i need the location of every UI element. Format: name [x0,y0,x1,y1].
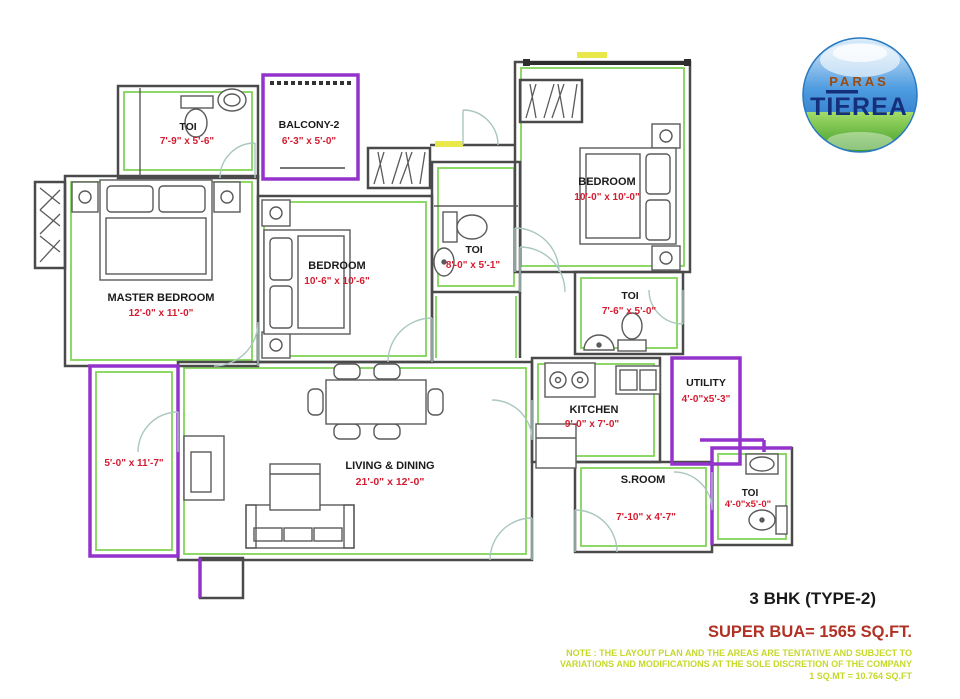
footer-text: 3 BHK (TYPE-2) SUPER BUA= 1565 SQ.FT. NO… [560,589,912,681]
paras-tierea-logo: PARAS TIEREA [803,38,917,152]
dims-toi-center: 8'-0" x 5'-1" [446,260,501,271]
dims-balcony2: 6'-3" x 5'-0" [282,136,337,147]
label-kitchen: KITCHEN [570,404,619,416]
dims-s-room: 7'-10" x 4'-7" [616,512,676,523]
sofa-icon [246,505,354,548]
note-line-2: VARIATIONS AND MODIFICATIONS AT THE SOLE… [560,659,912,669]
wall-wardrobe-left [35,182,65,268]
unit-type-label: 3 BHK (TYPE-2) [749,589,876,608]
dark-top-wall [523,59,691,66]
dims-bedroom-top: 10'-0" x 10'-0" [574,192,640,203]
label-toi-bottom: TOI [742,488,759,499]
label-living-dining: LIVING & DINING [345,460,434,472]
note-line-3: 1 SQ.MT = 10.764 SQ.FT [809,671,912,681]
tv-unit-icon [270,464,320,510]
logo-brand-top: PARAS [829,74,889,89]
dims-kitchen: 9'-0" x 7'-0" [565,419,620,430]
label-balcony2: BALCONY-2 [279,119,340,131]
dims-bedroom-mid: 10'-6" x 10'-6" [304,276,370,287]
purple-balcony-walls [90,75,792,598]
dining-table-icon [308,364,443,439]
label-toi-center: TOI [465,244,482,256]
dims-master-bedroom: 12'-0" x 11'-0" [129,308,194,319]
label-bedroom-top: BEDROOM [578,176,635,188]
dims-balcony-left: 5'-0" x 11'-7" [104,458,164,469]
label-toi-master: TOI [179,121,196,133]
label-s-room: S.ROOM [621,474,666,486]
dims-utility: 4'-0"x5'-3" [682,394,731,405]
dims-toi-bottom: 4'-0"x5'-0" [725,499,771,510]
floor-plan-page: TOI 7'-9" x 5'-6" BALCONY-2 6'-3" x 5'-0… [0,0,960,699]
note-line-1: NOTE : THE LAYOUT PLAN AND THE AREAS ARE… [566,648,912,658]
toilet-right-icon [584,313,646,351]
logo-gloss-highlight-small [833,44,887,62]
dims-toi-master: 7'-9" x 5'-6" [160,136,215,147]
label-master-bedroom: MASTER BEDROOM [108,292,215,304]
bed-master-icon [72,180,240,280]
logo-brand-main: TIEREA [810,93,908,121]
armchair-icon [184,436,224,500]
super-bua-label: SUPER BUA= 1565 SQ.FT. [708,623,912,641]
floor-plan-drawing: TOI 7'-9" x 5'-6" BALCONY-2 6'-3" x 5'-0… [0,0,960,699]
dims-living-dining: 21'-0" x 12'-0" [356,476,425,488]
wall-niche-bottom [200,558,243,598]
label-utility: UTILITY [686,377,726,389]
label-bedroom-mid: BEDROOM [308,260,365,272]
label-toi-right: TOI [621,290,638,302]
dims-toi-right: 7'-6" x 5'-0" [602,306,657,317]
